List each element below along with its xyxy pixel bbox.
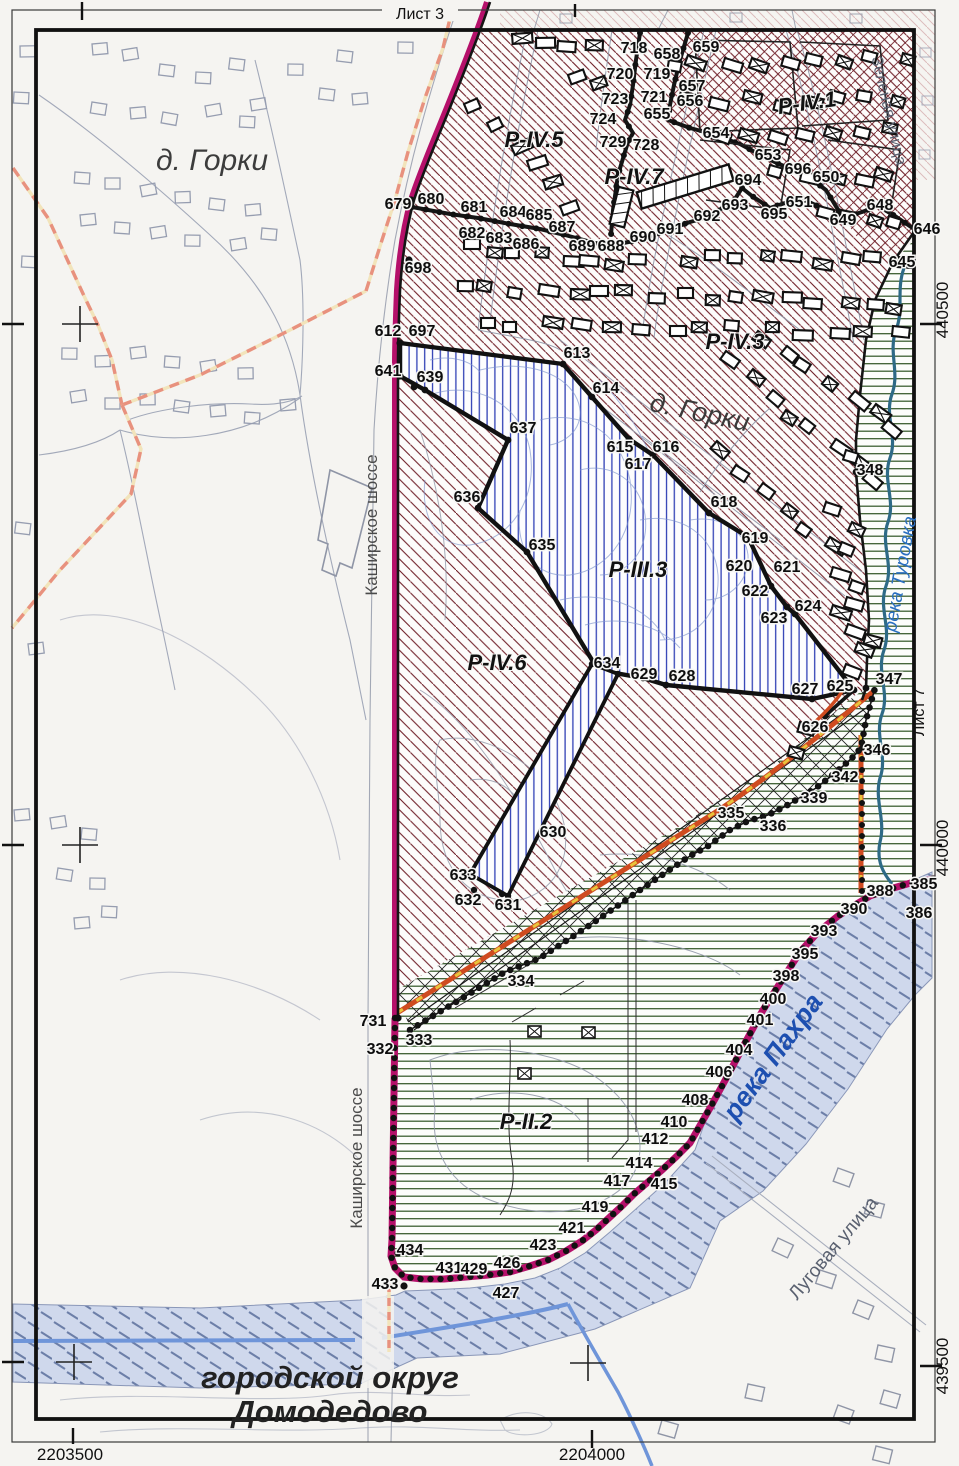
svg-text:636: 636 <box>454 489 481 506</box>
svg-text:650: 650 <box>813 169 840 186</box>
svg-text:390: 390 <box>841 901 868 918</box>
svg-text:631: 631 <box>495 897 522 914</box>
svg-text:339: 339 <box>801 790 828 807</box>
svg-text:Лист 3: Лист 3 <box>396 6 444 23</box>
svg-text:421: 421 <box>559 1220 586 1237</box>
svg-text:386: 386 <box>906 905 933 922</box>
svg-text:618: 618 <box>711 494 738 511</box>
svg-text:718: 718 <box>621 40 648 57</box>
svg-text:621: 621 <box>774 559 801 576</box>
svg-text:423: 423 <box>530 1237 557 1254</box>
svg-text:городской округ: городской округ <box>201 1360 459 1395</box>
svg-text:630: 630 <box>540 824 567 841</box>
svg-text:720: 720 <box>607 66 634 83</box>
svg-text:427: 427 <box>493 1285 520 1302</box>
svg-text:697: 697 <box>409 323 436 340</box>
svg-text:346: 346 <box>864 742 891 759</box>
svg-text:659: 659 <box>693 39 720 56</box>
svg-text:615: 615 <box>607 439 634 456</box>
svg-text:687: 687 <box>549 219 576 236</box>
svg-text:690: 690 <box>630 229 657 246</box>
svg-text:434: 434 <box>397 1242 424 1259</box>
svg-text:629: 629 <box>631 666 658 683</box>
svg-text:623: 623 <box>761 610 788 627</box>
svg-text:627: 627 <box>792 681 819 698</box>
svg-text:388: 388 <box>867 883 894 900</box>
svg-text:439500: 439500 <box>933 1338 952 1395</box>
svg-text:400: 400 <box>760 991 787 1008</box>
svg-text:333: 333 <box>406 1032 433 1049</box>
svg-text:622: 622 <box>742 583 769 600</box>
svg-text:440000: 440000 <box>933 820 952 877</box>
svg-text:385: 385 <box>911 876 938 893</box>
svg-text:693: 693 <box>722 197 749 214</box>
svg-text:431: 431 <box>436 1260 463 1277</box>
svg-text:696: 696 <box>785 161 812 178</box>
svg-text:624: 624 <box>795 598 822 615</box>
svg-text:721: 721 <box>641 89 668 106</box>
svg-text:P-IV.3: P-IV.3 <box>705 329 764 354</box>
svg-text:635: 635 <box>529 537 556 554</box>
svg-text:731: 731 <box>360 1013 387 1030</box>
svg-text:658: 658 <box>654 46 681 63</box>
svg-text:613: 613 <box>564 345 591 362</box>
svg-text:683: 683 <box>486 230 513 247</box>
svg-text:654: 654 <box>703 125 730 142</box>
svg-text:415: 415 <box>651 1176 678 1193</box>
svg-text:P-III.3: P-III.3 <box>609 557 668 582</box>
svg-text:Лист 7: Лист 7 <box>911 688 928 736</box>
svg-text:Домодедово: Домодедово <box>230 1394 428 1429</box>
svg-text:729: 729 <box>600 134 627 151</box>
svg-text:681: 681 <box>461 199 488 216</box>
svg-text:P-IV.7: P-IV.7 <box>604 164 665 189</box>
svg-text:692: 692 <box>694 208 721 225</box>
svg-text:410: 410 <box>661 1114 688 1131</box>
svg-text:335: 335 <box>718 805 745 822</box>
svg-text:348: 348 <box>857 462 884 479</box>
svg-text:680: 680 <box>418 191 445 208</box>
svg-text:646: 646 <box>914 221 941 238</box>
svg-text:P-IV.6: P-IV.6 <box>467 650 527 675</box>
svg-text:406: 406 <box>706 1064 733 1081</box>
svg-text:686: 686 <box>513 236 540 253</box>
svg-text:426: 426 <box>494 1255 521 1272</box>
svg-text:645: 645 <box>889 254 916 271</box>
svg-text:698: 698 <box>405 260 432 277</box>
svg-text:412: 412 <box>642 1131 669 1148</box>
svg-text:641: 641 <box>375 363 402 380</box>
svg-text:694: 694 <box>735 172 762 189</box>
svg-text:395: 395 <box>792 946 819 963</box>
svg-text:417: 417 <box>604 1173 631 1190</box>
svg-text:414: 414 <box>626 1155 653 1172</box>
svg-text:336: 336 <box>760 818 787 835</box>
svg-text:334: 334 <box>508 973 535 990</box>
svg-text:724: 724 <box>590 111 617 128</box>
svg-text:2203500: 2203500 <box>37 1445 103 1464</box>
svg-text:332: 332 <box>367 1041 394 1058</box>
svg-text:728: 728 <box>633 137 660 154</box>
svg-text:408: 408 <box>682 1092 709 1109</box>
svg-text:620: 620 <box>726 558 753 575</box>
svg-text:628: 628 <box>669 668 696 685</box>
svg-text:393: 393 <box>811 923 838 940</box>
svg-text:723: 723 <box>602 91 629 108</box>
svg-text:719: 719 <box>644 66 671 83</box>
svg-text:684: 684 <box>500 204 527 221</box>
svg-text:626: 626 <box>802 719 829 736</box>
svg-text:Каширское шоссе: Каширское шоссе <box>362 454 381 595</box>
svg-text:656: 656 <box>677 93 704 110</box>
svg-text:679: 679 <box>385 196 412 213</box>
svg-text:637: 637 <box>510 420 537 437</box>
svg-text:2204000: 2204000 <box>559 1445 625 1464</box>
svg-text:691: 691 <box>657 221 684 238</box>
svg-text:342: 342 <box>832 769 859 786</box>
svg-text:401: 401 <box>747 1012 774 1029</box>
svg-text:433: 433 <box>372 1276 399 1293</box>
svg-text:634: 634 <box>594 655 621 672</box>
svg-text:347: 347 <box>876 671 903 688</box>
svg-text:639: 639 <box>417 369 444 386</box>
svg-text:653: 653 <box>755 147 782 164</box>
svg-text:695: 695 <box>761 206 788 223</box>
svg-text:614: 614 <box>593 380 620 397</box>
svg-text:617: 617 <box>625 456 652 473</box>
svg-text:689: 689 <box>569 238 596 255</box>
svg-text:429: 429 <box>461 1261 488 1278</box>
svg-text:648: 648 <box>867 197 894 214</box>
svg-text:619: 619 <box>742 530 769 547</box>
svg-text:688: 688 <box>598 238 625 255</box>
svg-text:633: 633 <box>450 867 477 884</box>
svg-text:625: 625 <box>827 678 854 695</box>
svg-text:P-II.2: P-II.2 <box>500 1109 553 1134</box>
svg-text:404: 404 <box>726 1042 753 1059</box>
svg-text:649: 649 <box>830 212 857 229</box>
svg-text:440500: 440500 <box>933 282 952 339</box>
svg-text:632: 632 <box>455 892 482 909</box>
svg-text:655: 655 <box>644 106 671 123</box>
svg-text:Каширское шоссе: Каширское шоссе <box>347 1087 366 1228</box>
svg-text:616: 616 <box>653 439 680 456</box>
svg-text:651: 651 <box>786 194 813 211</box>
svg-text:P-IV.5: P-IV.5 <box>504 127 564 152</box>
svg-text:682: 682 <box>459 225 486 242</box>
svg-text:612: 612 <box>375 323 402 340</box>
svg-text:д. Горки: д. Горки <box>156 144 268 177</box>
svg-text:419: 419 <box>582 1199 609 1216</box>
svg-text:398: 398 <box>773 968 800 985</box>
